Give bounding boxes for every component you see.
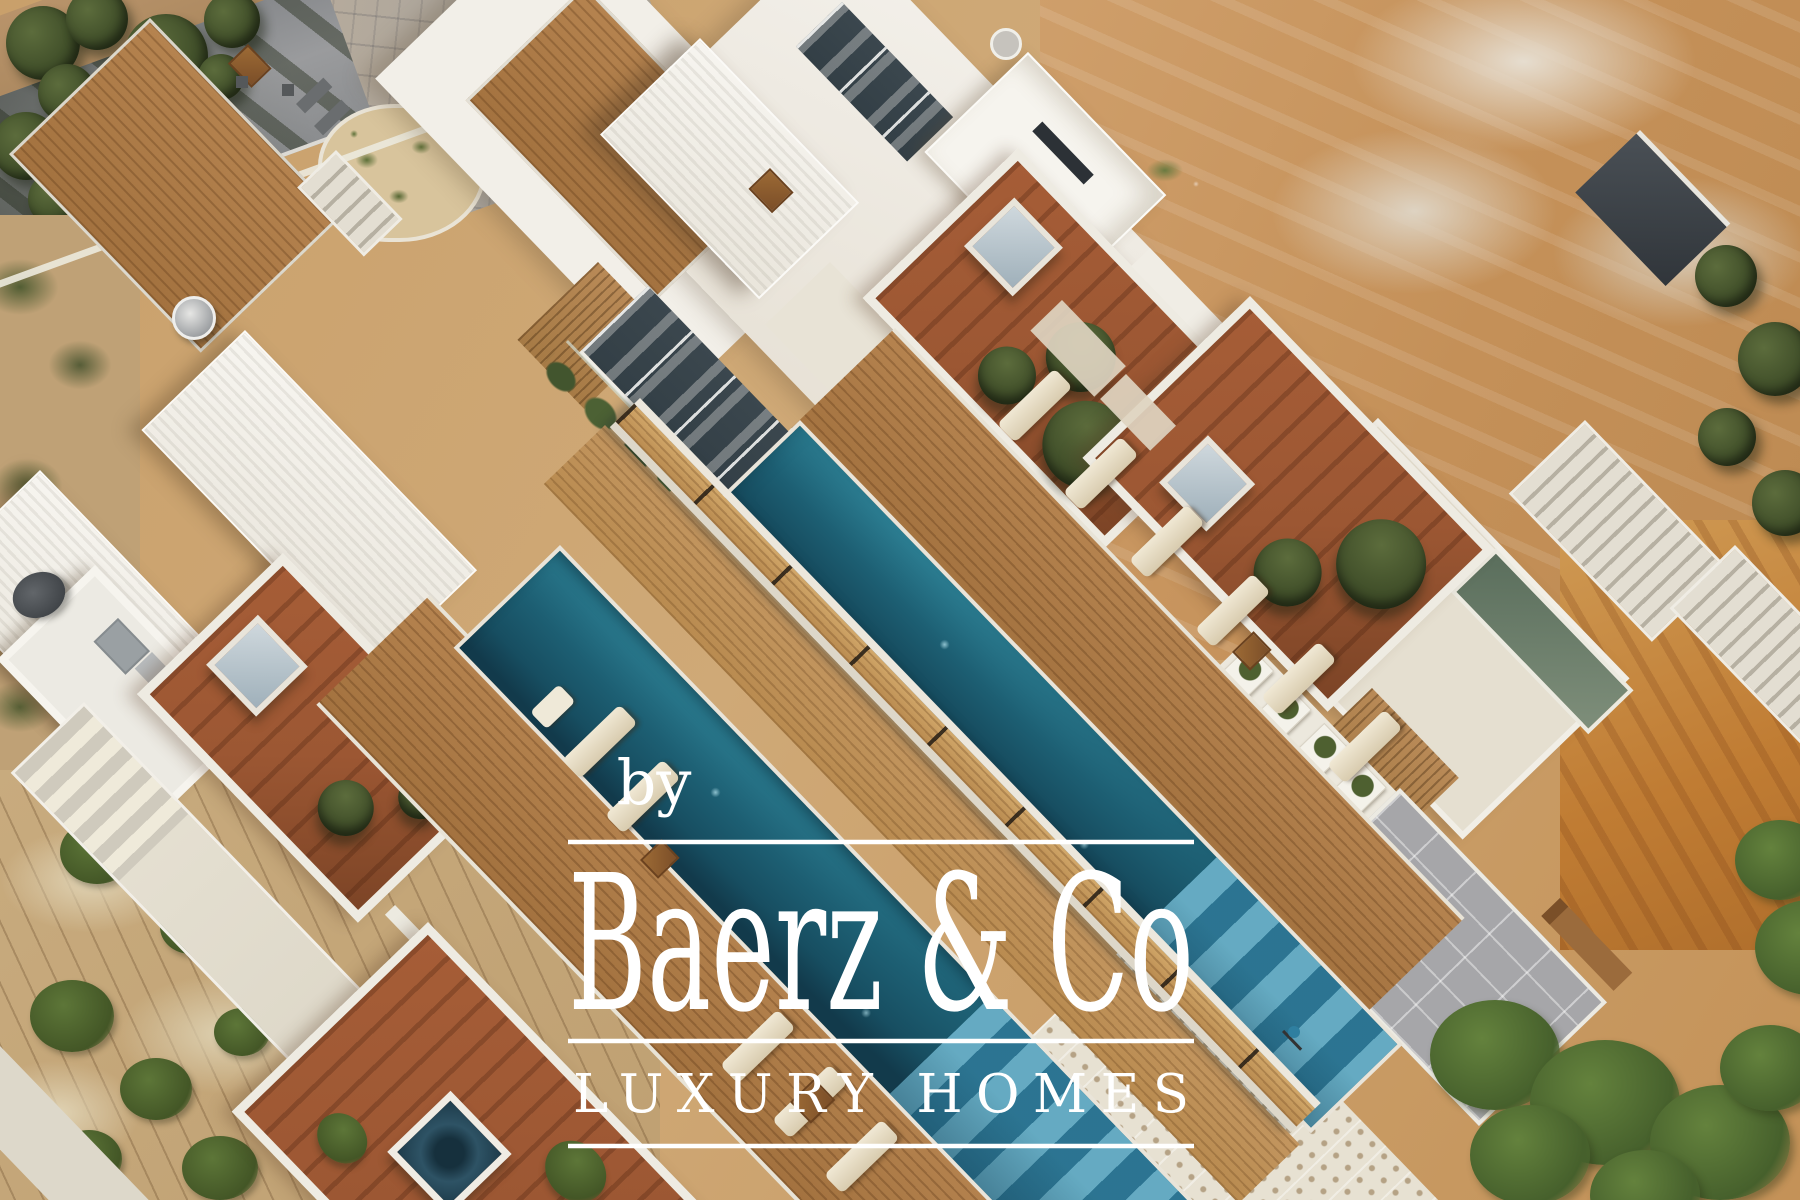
shrub (30, 980, 114, 1052)
watermark-brand: Baerz & Co (568, 835, 1194, 1054)
watermark-tagline: LUXURY HOMES (573, 1064, 1189, 1125)
skylight-round (387, 1091, 511, 1200)
skylight (964, 197, 1063, 296)
aerial-photo: by Baerz & Co LUXURY HOMES (0, 0, 1800, 1200)
shrub (120, 1058, 192, 1120)
terrace-chair (236, 76, 248, 88)
garden-plant (307, 1103, 378, 1174)
olive-tree (1317, 501, 1444, 628)
olive-tree (306, 768, 385, 847)
watermark: by Baerz & Co LUXURY HOMES (558, 746, 1202, 1160)
watermark-by: by (617, 746, 692, 819)
pool-shower-head (1288, 1026, 1300, 1038)
roof-vent (990, 28, 1022, 60)
bush (1470, 1105, 1590, 1200)
olive-tree (1698, 408, 1756, 466)
chimney-cap (172, 296, 216, 340)
shrub (182, 1136, 258, 1200)
olive-tree (1695, 245, 1757, 307)
skylight (206, 615, 308, 717)
terrace-chair (282, 84, 294, 96)
